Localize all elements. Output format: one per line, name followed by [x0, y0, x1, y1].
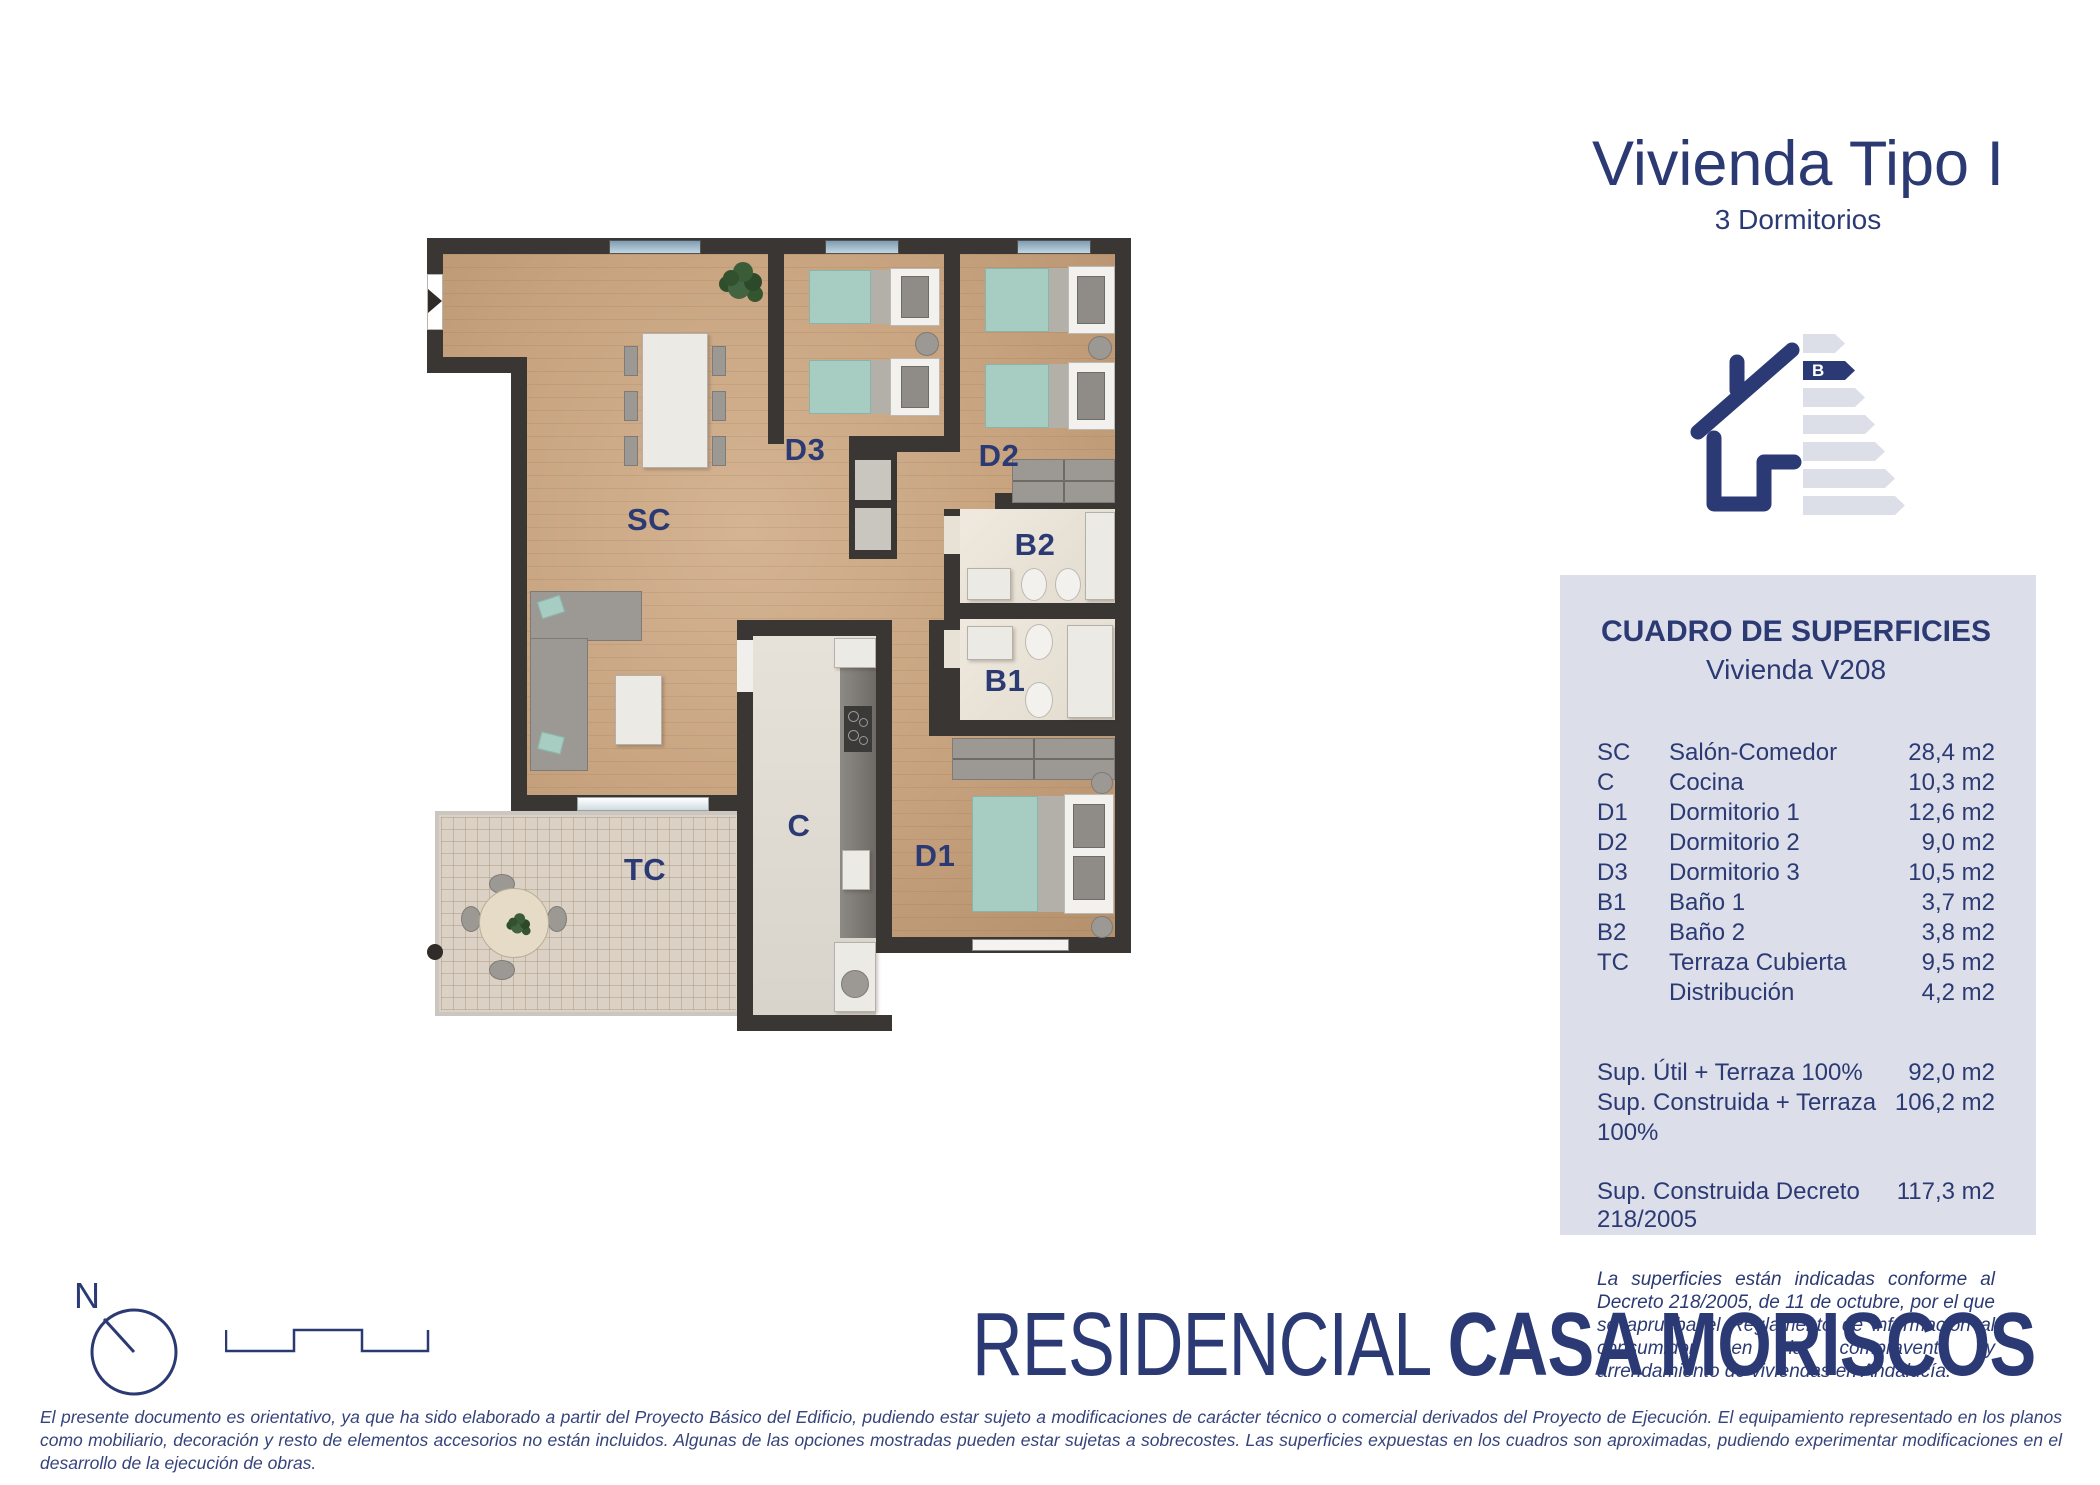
chair — [624, 436, 638, 466]
shower — [1067, 625, 1113, 718]
window — [1017, 240, 1091, 254]
kitchen-sink — [842, 850, 870, 890]
room-label-b2: B2 — [1015, 527, 1056, 563]
energy-bar — [1803, 388, 1865, 407]
table-row: TCTerraza Cubierta9,5 m2 — [1597, 948, 1995, 978]
bidet — [1055, 568, 1081, 601]
wall-kitchen-right — [876, 636, 892, 937]
table-row: Distribución4,2 m2 — [1597, 978, 1995, 1008]
window — [825, 240, 899, 254]
dresser — [1012, 459, 1115, 503]
room-label-d2: D2 — [979, 438, 1020, 474]
bed — [985, 268, 1049, 332]
wall-sc-d3 — [768, 254, 784, 444]
chair — [712, 346, 726, 376]
entry-arrow-icon — [428, 289, 442, 313]
wall-corridor — [929, 620, 945, 720]
plant-icon — [723, 270, 739, 286]
room-label-tc: TC — [624, 852, 666, 888]
table-row: D2Dormitorio 29,0 m2 — [1597, 828, 1995, 858]
room-label-b1: B1 — [985, 663, 1026, 699]
disclaimer-text: El presente documento es orientativo, ya… — [40, 1406, 2062, 1474]
bed — [809, 270, 871, 324]
room-label-d1: D1 — [915, 838, 956, 874]
brand-bold: CASA MORISCOS — [1448, 1295, 2036, 1395]
bed — [985, 364, 1049, 428]
terrace-chair — [461, 906, 481, 932]
wall-d3-d2 — [944, 254, 960, 436]
wall-kitchen-bottom — [737, 1015, 892, 1031]
table-row: D3Dormitorio 310,5 m2 — [1597, 858, 1995, 888]
energy-rating-icon: B — [1688, 326, 2008, 541]
bed-blanket — [1049, 268, 1068, 332]
total-row: Sup. Útil + Terraza 100%92,0 m2 — [1597, 1058, 1995, 1088]
washing-machine — [841, 970, 869, 998]
wall-kitchen-top — [737, 620, 892, 636]
wall-d3-bottom — [849, 436, 960, 452]
bed — [809, 360, 871, 414]
brand-light: RESIDENCIAL — [972, 1295, 1448, 1395]
north-compass-icon: N — [68, 1276, 188, 1401]
chair — [712, 391, 726, 421]
pillow — [1073, 856, 1105, 900]
nightstand — [915, 332, 939, 356]
bed-blanket — [871, 270, 890, 324]
table-row: B1Baño 13,7 m2 — [1597, 888, 1995, 918]
bed-blanket — [1038, 796, 1064, 912]
energy-bar — [1803, 415, 1875, 434]
coffee-table — [615, 675, 662, 745]
terrace-post — [427, 944, 443, 960]
door-opening-b1 — [944, 630, 960, 668]
wall — [511, 357, 527, 811]
table-title: CUADRO DE SUPERFICIES — [1597, 615, 1995, 649]
chair — [624, 346, 638, 376]
pillow — [1077, 276, 1105, 324]
bidet — [1025, 682, 1053, 718]
room-label-sc: SC — [627, 502, 671, 538]
double-bed — [972, 796, 1038, 912]
terrace-chair — [547, 906, 567, 932]
dresser — [952, 738, 1115, 780]
compass-n-label: N — [74, 1276, 100, 1316]
pillow — [1073, 804, 1105, 848]
door-opening-kitchen — [737, 640, 753, 692]
toilet — [1025, 624, 1053, 660]
closet — [849, 452, 897, 559]
plant-icon — [509, 918, 518, 927]
energy-bar — [1803, 496, 1905, 515]
surface-table: SCSalón-Comedor28,4 m2 CCocina10,3 m2 D1… — [1597, 738, 1995, 1008]
totals: Sup. Útil + Terraza 100%92,0 m2 Sup. Con… — [1597, 1058, 1995, 1148]
nightstand — [1091, 916, 1113, 938]
sink — [967, 626, 1013, 660]
toilet — [1021, 568, 1047, 601]
page-title: Vivienda Tipo I — [1548, 128, 2048, 200]
table-subtitle: Vivienda V208 — [1597, 654, 1995, 686]
chair — [712, 436, 726, 466]
table-row: B2Baño 23,8 m2 — [1597, 918, 1995, 948]
shower — [1085, 512, 1115, 600]
brand-logo: RESIDENCIAL CASA MORISCOS — [972, 1294, 2036, 1397]
nightstand — [1091, 772, 1113, 794]
room-label-d3: D3 — [785, 432, 826, 468]
chair — [624, 391, 638, 421]
stove — [844, 706, 872, 752]
section-profile-icon — [225, 1326, 431, 1356]
room-label-c: C — [788, 808, 811, 844]
door-opening-b2 — [944, 516, 960, 554]
energy-bars: B — [1803, 334, 1905, 523]
energy-bar — [1803, 334, 1845, 353]
energy-bar — [1803, 442, 1885, 461]
floor-plan: SC D3 D2 B2 B1 C D1 TC — [427, 238, 1131, 1033]
terrace-slider-door — [577, 797, 709, 811]
decree-row: Sup. Construida Decreto 218/2005117,3 m2 — [1597, 1178, 1995, 1234]
page-subtitle: 3 Dormitorios — [1548, 204, 2048, 236]
title-block: Vivienda Tipo I 3 Dormitorios — [1548, 128, 2048, 236]
terrace-chair — [489, 960, 515, 980]
dining-table — [642, 333, 708, 468]
energy-bar — [1803, 469, 1895, 488]
nightstand — [1088, 336, 1112, 360]
pillow — [1077, 372, 1105, 420]
pillow — [901, 276, 929, 318]
wall — [1115, 238, 1131, 953]
bed-blanket — [1049, 364, 1068, 428]
energy-bar-active: B — [1803, 361, 1855, 380]
bed-blanket — [871, 360, 890, 414]
total-row: Sup. Construida + Terraza 100%106,2 m2 — [1597, 1088, 1995, 1148]
table-row: SCSalón-Comedor28,4 m2 — [1597, 738, 1995, 768]
table-row: CCocina10,3 m2 — [1597, 768, 1995, 798]
table-row: D1Dormitorio 112,6 m2 — [1597, 798, 1995, 828]
sink — [967, 568, 1011, 600]
wall-b1-bottom — [929, 720, 1131, 736]
energy-house-icon — [1688, 326, 1803, 526]
fridge — [834, 638, 876, 668]
wall-b2-b1 — [960, 603, 1115, 619]
pillow — [901, 366, 929, 408]
window — [609, 240, 701, 254]
window — [972, 939, 1069, 951]
surface-table-panel: CUADRO DE SUPERFICIES Vivienda V208 SCSa… — [1560, 575, 2036, 1235]
